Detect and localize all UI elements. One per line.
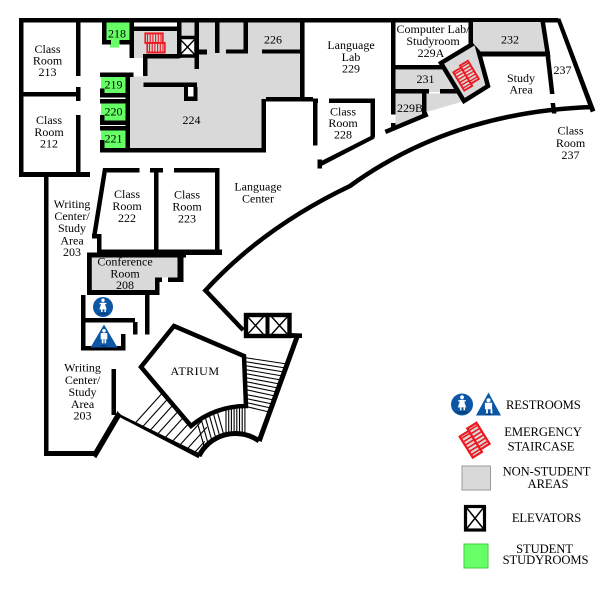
svg-text:203: 203: [74, 409, 92, 423]
svg-text:AREAS: AREAS: [528, 477, 569, 491]
svg-text:226: 226: [264, 33, 282, 47]
svg-text:RESTROOMS: RESTROOMS: [506, 398, 581, 412]
svg-text:ELEVATORS: ELEVATORS: [512, 511, 581, 525]
svg-text:Center: Center: [242, 192, 274, 206]
svg-text:223: 223: [178, 212, 196, 226]
svg-text:STAIRCASE: STAIRCASE: [508, 440, 575, 454]
svg-text:EMERGENCY: EMERGENCY: [504, 425, 581, 439]
svg-text:219: 219: [105, 78, 123, 92]
svg-text:208: 208: [116, 278, 134, 292]
svg-text:221: 221: [105, 132, 123, 146]
svg-text:229B: 229B: [397, 101, 423, 115]
svg-text:237: 237: [562, 148, 580, 162]
svg-text:213: 213: [39, 65, 57, 79]
svg-text:220: 220: [105, 105, 123, 119]
svg-text:218: 218: [108, 27, 126, 41]
svg-text:212: 212: [40, 137, 58, 151]
svg-text:WOMEN: WOMEN: [98, 313, 108, 316]
svg-text:MEN: MEN: [101, 345, 106, 347]
svg-text:228: 228: [334, 128, 352, 142]
svg-text:203: 203: [63, 245, 81, 259]
svg-text:STUDYROOMS: STUDYROOMS: [503, 553, 589, 567]
svg-text:229: 229: [342, 62, 360, 76]
svg-text:WOMEN: WOMEN: [457, 411, 468, 414]
svg-text:231: 231: [417, 72, 435, 86]
svg-text:MEN: MEN: [486, 413, 492, 416]
svg-text:Area: Area: [509, 83, 533, 97]
svg-text:237: 237: [554, 63, 572, 77]
svg-text:222: 222: [118, 211, 136, 225]
svg-text:232: 232: [501, 33, 519, 47]
svg-text:ATRIUM: ATRIUM: [170, 364, 219, 378]
svg-text:224: 224: [183, 113, 201, 127]
svg-text:229A: 229A: [418, 46, 445, 60]
